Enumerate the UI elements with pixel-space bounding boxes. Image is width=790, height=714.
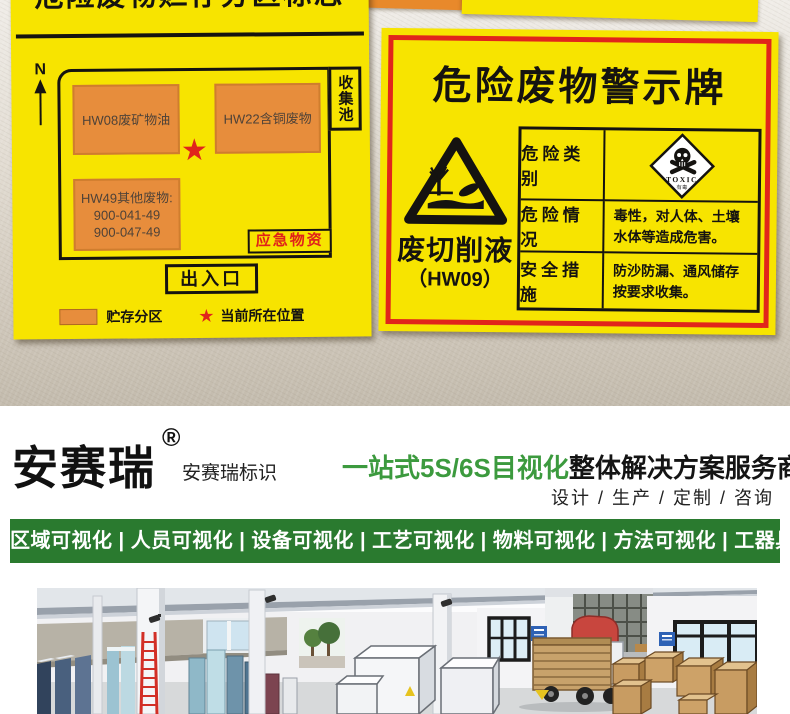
registered-mark-icon: ® bbox=[162, 424, 180, 453]
legend-zone-swatch bbox=[59, 309, 97, 325]
row2-label: 危险情况 bbox=[520, 200, 603, 251]
compass-n-label: N bbox=[25, 61, 55, 79]
background-sign-fragment-yellow bbox=[462, 0, 759, 22]
zone-hw49-code1: 900-041-49 bbox=[94, 206, 161, 224]
row3-line2: 按要求收集。 bbox=[613, 281, 697, 303]
wall-background: 危险废物贮存分区标志 N 收集池 HW08废矿物油 HW22含铜废物 HW49其… bbox=[0, 0, 790, 406]
toxic-diamond-cell: TOXIC 有毒 bbox=[605, 130, 759, 203]
tagline-green-part: 一站式5S/6S目视化 bbox=[342, 453, 569, 483]
zone-hw49-name: HW49其他废物: bbox=[81, 189, 173, 207]
window-left bbox=[203, 618, 255, 653]
zone-hw08: HW08废矿物油 bbox=[72, 84, 180, 155]
row2-value: 毒性，对人体、土壤 水体等造成危害。 bbox=[604, 201, 758, 255]
brand-tagline: 一站式5S/6S目视化整体解决方案服务商 bbox=[342, 448, 790, 485]
warehouse-illustration bbox=[37, 588, 757, 714]
wall-sign-blue-2 bbox=[659, 632, 675, 646]
legend-location-label: 当前所在位置 bbox=[220, 305, 304, 326]
background-sign-fragment-orange bbox=[368, 0, 468, 10]
entrance-box: 出入口 bbox=[165, 263, 258, 294]
visualization-banner: 区域可视化 | 人员可视化 | 设备可视化 | 工艺可视化 | 物料可视化 | … bbox=[10, 519, 780, 563]
toxic-skull-diamond-icon: TOXIC 有毒 bbox=[647, 131, 716, 200]
emergency-supplies-box: 应急物资 bbox=[248, 229, 332, 254]
brand-logo: 安赛瑞 bbox=[12, 432, 156, 498]
window-mid bbox=[489, 618, 529, 660]
doorway-trees bbox=[299, 618, 345, 668]
row2-line2: 水体等造成危害。 bbox=[613, 226, 725, 248]
zone-hw49: HW49其他废物: 900-041-49 900-047-49 bbox=[73, 178, 181, 251]
zone-hw22: HW22含铜废物 bbox=[214, 83, 321, 154]
warning-sign-title: 危险废物警示牌 bbox=[381, 54, 779, 114]
row3-value: 防沙防漏、通风储存 按要求收集。 bbox=[604, 253, 758, 310]
hazard-info-table: 危险类别 TOXIC 有毒 危险情况 毒性，对人体、土壤 水体 bbox=[517, 126, 762, 313]
environment-hazard-triangle-icon bbox=[400, 132, 513, 229]
map-legend: 贮存分区 ★ 当前所在位置 bbox=[59, 305, 304, 327]
warning-board-sign: 危险废物警示牌 废切削液 （HW09） 危险类别 bbox=[378, 28, 778, 335]
north-arrow-icon bbox=[33, 79, 47, 125]
compass-north: N bbox=[25, 61, 56, 130]
row3-line1: 防沙防漏、通风储存 bbox=[613, 260, 739, 282]
row2-line1: 毒性，对人体、土壤 bbox=[614, 205, 740, 227]
brand-sub-label: 安赛瑞标识 bbox=[182, 458, 277, 485]
toxic-sub-text: 有毒 bbox=[676, 183, 688, 191]
services-line: 设计 / 生产 / 定制 / 咨询 bbox=[551, 484, 774, 510]
row1-label: 危险类别 bbox=[521, 139, 604, 190]
collection-pool-box: 收集池 bbox=[328, 67, 362, 131]
storage-sign-title: 危险废物贮存分区标志 bbox=[10, 0, 368, 16]
tagline-black-part: 整体解决方案服务商 bbox=[569, 453, 790, 483]
brand-footer: 安赛瑞 ® 安赛瑞标识 一站式5S/6S目视化整体解决方案服务商 设计 / 生产… bbox=[0, 406, 790, 714]
legend-zone-label: 贮存分区 bbox=[106, 306, 162, 326]
storage-zone-sign: 危险废物贮存分区标志 N 收集池 HW08废矿物油 HW22含铜废物 HW49其… bbox=[10, 0, 371, 340]
toxic-text: TOXIC bbox=[666, 174, 698, 183]
current-location-star-icon: ★ bbox=[181, 136, 208, 166]
legend-star-icon: ★ bbox=[198, 309, 214, 323]
title-divider bbox=[16, 31, 364, 38]
zone-hw49-code2: 900-047-49 bbox=[94, 223, 161, 241]
waste-code: （HW09） bbox=[383, 262, 527, 293]
product-detail-image: { "colors": { "sign_yellow": "#f7e400", … bbox=[0, 0, 790, 714]
row3-label: 安全措施 bbox=[520, 255, 603, 306]
